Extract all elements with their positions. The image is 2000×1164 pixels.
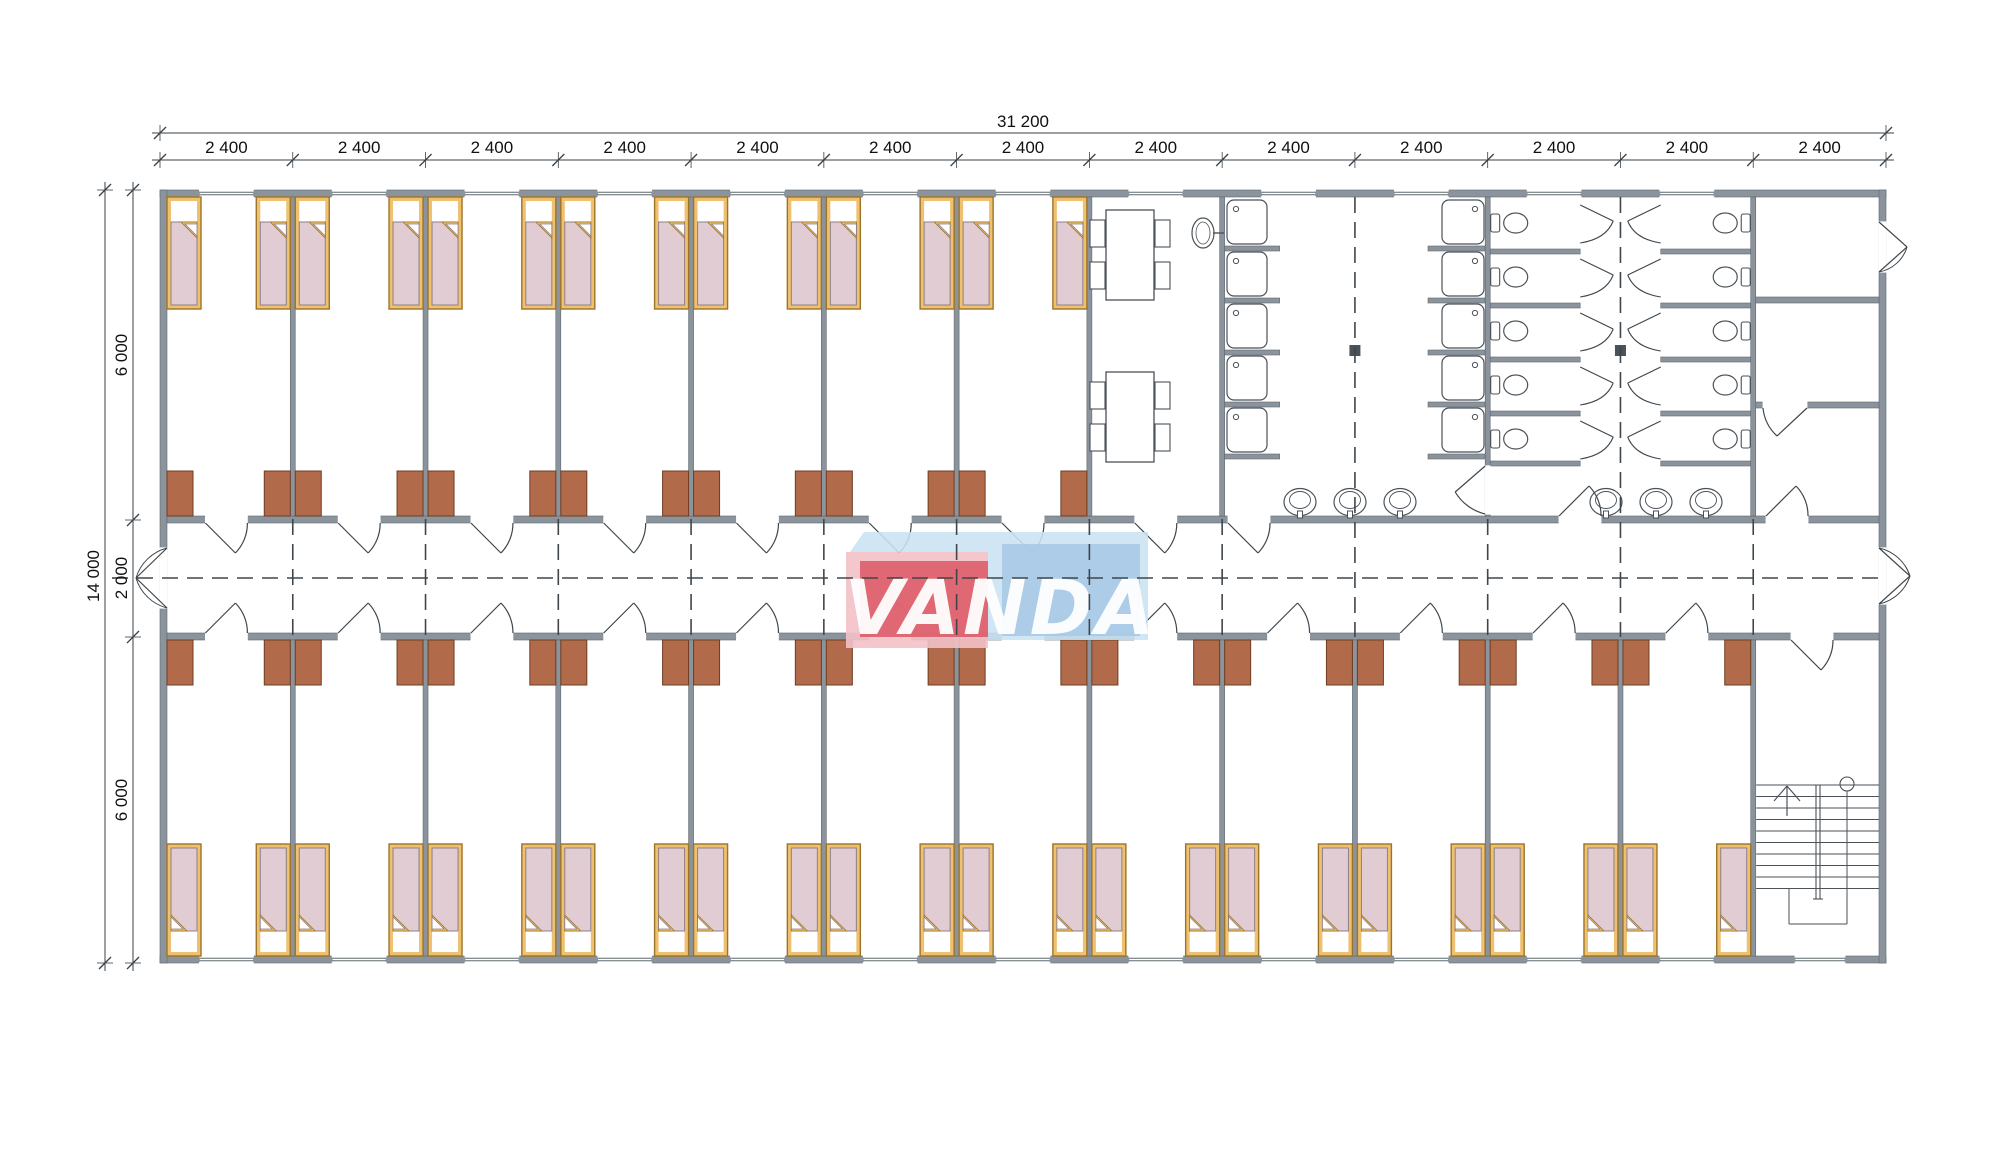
window-jamb — [1713, 191, 1715, 196]
dimension-label: 2 400 — [1002, 138, 1045, 157]
partition-top — [423, 197, 428, 516]
partition-bottom — [423, 640, 428, 956]
watermark-text: VANDA — [845, 563, 1158, 652]
toilet-partition — [1661, 303, 1751, 308]
wall-opening — [863, 955, 918, 963]
window-jamb — [1315, 957, 1317, 962]
floor-plan-canvas: VANDA31 2002 4002 4002 4002 4002 4002 40… — [0, 0, 2000, 1164]
door-arc — [1763, 408, 1777, 436]
chair — [1155, 220, 1170, 247]
toilet-bowl — [1713, 267, 1737, 287]
chair — [1155, 262, 1170, 289]
wardrobe — [663, 640, 689, 685]
wardrobe — [694, 640, 720, 685]
door-leaf — [1766, 486, 1796, 516]
window-jamb — [1182, 957, 1184, 962]
wall-opening — [1763, 401, 1808, 408]
partition-top — [556, 197, 561, 516]
wardrobe — [167, 471, 193, 516]
window-jamb — [386, 957, 388, 962]
partition-top — [1751, 197, 1756, 516]
toilet-partition — [1661, 411, 1751, 416]
dimension-label: 2 400 — [205, 138, 248, 157]
wardrobe — [561, 471, 587, 516]
wall-opening — [1879, 221, 1887, 272]
door-leaf — [205, 523, 235, 553]
door-leaf — [1228, 523, 1258, 553]
shower-partition — [1428, 298, 1485, 303]
wardrobe — [1459, 640, 1485, 685]
wall-opening — [863, 189, 918, 197]
door-arc — [1258, 523, 1270, 553]
wall-opening — [1879, 547, 1887, 604]
partition-top — [821, 197, 826, 516]
wardrobe — [694, 471, 720, 516]
shower-tray — [1227, 356, 1267, 400]
window-jamb — [861, 191, 863, 196]
stall-door-leaf — [1628, 259, 1661, 275]
wardrobe — [1725, 640, 1751, 685]
door-arc — [501, 603, 513, 633]
door-arc — [1563, 603, 1575, 633]
wall-opening — [730, 955, 785, 963]
toilet-tank — [1491, 322, 1500, 340]
window-jamb — [386, 191, 388, 196]
shower-tray — [1442, 200, 1484, 244]
door-leaf — [1533, 603, 1563, 633]
wall-opening — [996, 955, 1051, 963]
door-leaf — [1268, 603, 1298, 633]
door-arc — [634, 603, 646, 633]
wall-opening — [869, 515, 912, 523]
drinking-fountain — [1192, 218, 1214, 248]
wall-opening — [1659, 955, 1714, 963]
wardrobe — [561, 640, 587, 685]
wall-opening — [1228, 515, 1271, 523]
chair — [1155, 382, 1170, 409]
wardrobe — [1490, 640, 1516, 685]
door-arc — [368, 523, 380, 553]
wall-opening — [205, 515, 248, 523]
dimension-label: 2 400 — [1134, 138, 1177, 157]
wardrobe — [264, 640, 290, 685]
door-leaf — [338, 603, 368, 633]
door-leaf — [205, 603, 235, 633]
wall-opening — [603, 515, 646, 523]
door-leaf — [604, 523, 634, 553]
chair — [1090, 262, 1105, 289]
door-leaf — [1559, 486, 1589, 516]
partition-top — [290, 197, 295, 516]
toilet-bowl — [1713, 429, 1737, 449]
window-jamb — [1050, 957, 1052, 962]
window-jamb — [1182, 191, 1184, 196]
wardrobe — [167, 640, 193, 685]
door-arc — [1821, 640, 1833, 670]
wall-opening — [730, 189, 785, 197]
toilet-partition — [1490, 249, 1580, 254]
wardrobe — [530, 640, 556, 685]
stall-door-arc — [1628, 221, 1661, 243]
partition-bottom — [689, 640, 694, 956]
window-jamb — [1050, 191, 1052, 196]
stall-door-arc — [1580, 383, 1613, 405]
door-leaf — [1666, 603, 1696, 633]
wardrobe — [428, 471, 454, 516]
utility-wall — [1756, 297, 1879, 303]
door-leaf — [1400, 603, 1430, 633]
dimension-label: 14 000 — [84, 550, 103, 602]
chair — [1090, 382, 1105, 409]
door-leaf — [604, 603, 634, 633]
basin-tap — [1704, 511, 1709, 518]
partition-bottom — [1751, 640, 1756, 956]
partition-top — [1220, 197, 1225, 516]
door-arc — [1430, 603, 1442, 633]
wall-opening — [1533, 632, 1576, 640]
stall-door-leaf — [1580, 367, 1613, 383]
window-jamb — [1127, 957, 1129, 962]
wall-opening — [205, 632, 248, 640]
window-jamb — [1658, 191, 1660, 196]
window-jamb — [917, 191, 919, 196]
toilet-tank — [1741, 214, 1750, 232]
watermark-group: VANDA — [845, 532, 1158, 652]
window-jamb — [1448, 191, 1450, 196]
toilet-partition — [1661, 461, 1751, 466]
stair-up-arrow — [1774, 786, 1787, 801]
shower-partition — [1225, 454, 1280, 459]
door-leaf — [1777, 408, 1807, 436]
dining-table — [1106, 210, 1154, 300]
stall-door-arc — [1580, 275, 1613, 297]
shower-tray — [1442, 408, 1484, 452]
window-jamb — [330, 957, 332, 962]
door-arc — [1455, 492, 1485, 514]
chair — [1155, 424, 1170, 451]
door-leaf — [1791, 640, 1821, 670]
window-jamb — [1127, 191, 1129, 196]
window-jamb — [463, 957, 465, 962]
shower-tray — [1442, 304, 1484, 348]
stall-door-arc — [1580, 329, 1613, 351]
shower-partition — [1428, 454, 1485, 459]
dimension-label: 2 400 — [869, 138, 912, 157]
wall-opening — [199, 189, 254, 197]
toilet-tank — [1741, 322, 1750, 340]
window-jamb — [596, 191, 598, 196]
wall-opening — [1128, 189, 1183, 197]
door-leaf — [736, 603, 766, 633]
wardrobe — [795, 471, 821, 516]
wall-opening — [332, 189, 387, 197]
window-jamb — [1581, 191, 1583, 196]
stall-door-leaf — [1628, 313, 1661, 329]
wall-opening — [603, 632, 646, 640]
wall-opening — [332, 955, 387, 963]
chair — [1090, 424, 1105, 451]
dimension-label: 2 400 — [471, 138, 514, 157]
shower-partition — [1225, 402, 1280, 407]
wall-opening — [736, 632, 779, 640]
stall-door-leaf — [1628, 421, 1661, 437]
wall-opening — [199, 955, 254, 963]
wardrobe — [1357, 640, 1383, 685]
wall-opening — [1394, 189, 1449, 197]
stall-door-leaf — [1628, 367, 1661, 383]
toilet-bowl — [1504, 213, 1528, 233]
window-jamb — [1260, 957, 1262, 962]
wall-opening — [338, 515, 381, 523]
wardrobe — [1061, 471, 1087, 516]
door-arc — [235, 603, 247, 633]
wall-opening — [1795, 955, 1846, 963]
dimension-label: 2 400 — [1798, 138, 1841, 157]
shower-partition — [1225, 298, 1280, 303]
wardrobe — [959, 471, 985, 516]
door-arc — [368, 603, 380, 633]
shower-partition — [1428, 246, 1485, 251]
partition-bottom — [954, 640, 959, 956]
toilet-tank — [1491, 430, 1500, 448]
window-jamb — [596, 957, 598, 962]
stall-door-arc — [1628, 437, 1661, 459]
window-jamb — [1525, 957, 1527, 962]
basin-tap — [1398, 511, 1403, 518]
partition-top — [689, 197, 694, 516]
door-leaf — [471, 523, 501, 553]
wall-opening — [1559, 515, 1602, 523]
shower-partition — [1428, 350, 1485, 355]
door-leaf — [736, 523, 766, 553]
toilet-bowl — [1504, 267, 1528, 287]
wall-opening — [471, 515, 514, 523]
toilet-tank — [1741, 376, 1750, 394]
stall-door-arc — [1580, 221, 1613, 243]
stall-door-leaf — [1580, 205, 1613, 221]
door-arc — [766, 523, 778, 553]
window-jamb — [728, 191, 730, 196]
window-jamb — [1392, 191, 1394, 196]
door-leaf — [471, 603, 501, 633]
door-arc — [1165, 603, 1177, 633]
toilet-bowl — [1713, 321, 1737, 341]
window-jamb — [994, 191, 996, 196]
stair-up-arrow — [1787, 786, 1800, 801]
door-arc — [501, 523, 513, 553]
stall-door-arc — [1628, 329, 1661, 351]
wall-opening — [597, 955, 652, 963]
wall-opening — [1261, 955, 1316, 963]
toilet-partition — [1661, 357, 1751, 362]
shower-partition — [1225, 350, 1280, 355]
wardrobe — [928, 471, 954, 516]
window-jamb — [917, 957, 919, 962]
toilet-tank — [1491, 376, 1500, 394]
shower-tray — [1227, 252, 1267, 296]
window-jamb — [1713, 957, 1715, 962]
dimension-label: 2 400 — [736, 138, 779, 157]
window-jamb — [1845, 957, 1847, 962]
dimension-label: 31 200 — [997, 112, 1049, 131]
door-arc — [1696, 603, 1708, 633]
wardrobe — [1225, 640, 1251, 685]
window-jamb — [1658, 957, 1660, 962]
window-jamb — [1392, 957, 1394, 962]
door-arc — [1796, 486, 1808, 516]
toilet-tank — [1491, 268, 1500, 286]
window-jamb — [197, 957, 199, 962]
wardrobe — [428, 640, 454, 685]
window-jamb — [728, 957, 730, 962]
window-jamb — [784, 191, 786, 196]
wall-opening — [1261, 189, 1316, 197]
window-jamb — [253, 191, 255, 196]
toilet-bowl — [1713, 375, 1737, 395]
partition-bottom — [1485, 640, 1490, 956]
partition-bottom — [290, 640, 295, 956]
shower-tray — [1227, 408, 1267, 452]
door-arc — [766, 603, 778, 633]
stall-door-arc — [1580, 437, 1613, 459]
shower-partition — [1225, 246, 1280, 251]
wardrobe — [295, 471, 321, 516]
toilet-bowl — [1713, 213, 1737, 233]
window-jamb — [1581, 957, 1583, 962]
basin-tap — [1298, 511, 1303, 518]
chair — [1090, 220, 1105, 247]
dimension-label: 2 400 — [1666, 138, 1709, 157]
wardrobe — [795, 640, 821, 685]
window-jamb — [519, 191, 521, 196]
wardrobe — [1326, 640, 1352, 685]
wall-opening — [1400, 632, 1443, 640]
door-arc — [235, 523, 247, 553]
shower-tray — [1442, 252, 1484, 296]
wall-opening — [736, 515, 779, 523]
wall-opening — [1485, 465, 1491, 514]
wall-opening — [1134, 515, 1177, 523]
wall-opening — [471, 632, 514, 640]
window-jamb — [1793, 957, 1795, 962]
window-jamb — [253, 957, 255, 962]
partition-bottom — [1087, 640, 1092, 956]
shower-partition — [1428, 402, 1485, 407]
toilet-bowl — [1504, 321, 1528, 341]
window-jamb — [994, 957, 996, 962]
toilet-bowl — [1504, 375, 1528, 395]
basin-tap — [1604, 511, 1609, 518]
stall-door-leaf — [1580, 313, 1613, 329]
dimension-label: 2 000 — [112, 557, 131, 600]
dimension-label: 2 400 — [338, 138, 381, 157]
partition-bottom — [556, 640, 561, 956]
toilet-partition — [1661, 249, 1751, 254]
window-jamb — [784, 957, 786, 962]
window-jamb — [1315, 191, 1317, 196]
door-arc — [634, 523, 646, 553]
partition-bottom — [1618, 640, 1623, 956]
wardrobe — [397, 471, 423, 516]
dimension-label: 2 400 — [603, 138, 646, 157]
toilet-partition — [1490, 411, 1580, 416]
partition-bottom — [1352, 640, 1357, 956]
stall-door-arc — [1628, 383, 1661, 405]
door-leaf — [338, 523, 368, 553]
wardrobe — [1623, 640, 1649, 685]
toilet-partition — [1490, 303, 1580, 308]
toilet-partition — [1490, 357, 1580, 362]
wardrobe — [1592, 640, 1618, 685]
window-jamb — [861, 957, 863, 962]
dimension-label: 2 400 — [1267, 138, 1310, 157]
wall-opening — [1128, 955, 1183, 963]
toilet-tank — [1491, 214, 1500, 232]
dining-table — [1106, 372, 1154, 462]
stall-door-arc — [1628, 275, 1661, 297]
wall-opening — [1267, 632, 1310, 640]
window-jamb — [197, 191, 199, 196]
wardrobe — [1194, 640, 1220, 685]
window-jamb — [651, 957, 653, 962]
basin-tap — [1654, 511, 1659, 518]
shower-tray — [1227, 200, 1267, 244]
wardrobe — [530, 471, 556, 516]
dimension-label: 6 000 — [112, 334, 131, 377]
wardrobe — [295, 640, 321, 685]
basin-tap — [1348, 511, 1353, 518]
wall-opening — [465, 189, 520, 197]
wardrobe — [264, 471, 290, 516]
floor-plan-drawing: VANDA31 2002 4002 4002 4002 4002 4002 40… — [0, 0, 2000, 1164]
shower-tray — [1442, 356, 1484, 400]
window-jamb — [330, 191, 332, 196]
wall-opening — [1527, 189, 1582, 197]
toilet-tank — [1741, 430, 1750, 448]
window-jamb — [519, 957, 521, 962]
dimension-label: 6 000 — [112, 779, 131, 822]
window-jamb — [1525, 191, 1527, 196]
stall-door-leaf — [1628, 205, 1661, 221]
wall-opening — [1791, 632, 1834, 640]
partition-top — [954, 197, 959, 516]
wardrobe — [397, 640, 423, 685]
wall-opening — [1659, 189, 1714, 197]
wall-opening — [1766, 515, 1809, 523]
wall-opening — [1002, 515, 1045, 523]
door-leaf — [1455, 466, 1485, 492]
wardrobe — [663, 471, 689, 516]
window-jamb — [1448, 957, 1450, 962]
door-arc — [1298, 603, 1310, 633]
wall-opening — [1527, 955, 1582, 963]
window-jamb — [463, 191, 465, 196]
dimension-label: 2 400 — [1400, 138, 1443, 157]
wall-opening — [1394, 955, 1449, 963]
window-jamb — [1260, 191, 1262, 196]
stall-door-leaf — [1580, 259, 1613, 275]
toilet-tank — [1741, 268, 1750, 286]
stall-door-leaf — [1580, 421, 1613, 437]
partition-bottom — [821, 640, 826, 956]
wall-opening — [1665, 632, 1708, 640]
door-arc — [1165, 523, 1177, 553]
dimension-label: 2 400 — [1533, 138, 1576, 157]
toilet-partition — [1490, 461, 1580, 466]
wall-opening — [465, 955, 520, 963]
partition-bottom — [1220, 640, 1225, 956]
toilet-bowl — [1504, 429, 1528, 449]
